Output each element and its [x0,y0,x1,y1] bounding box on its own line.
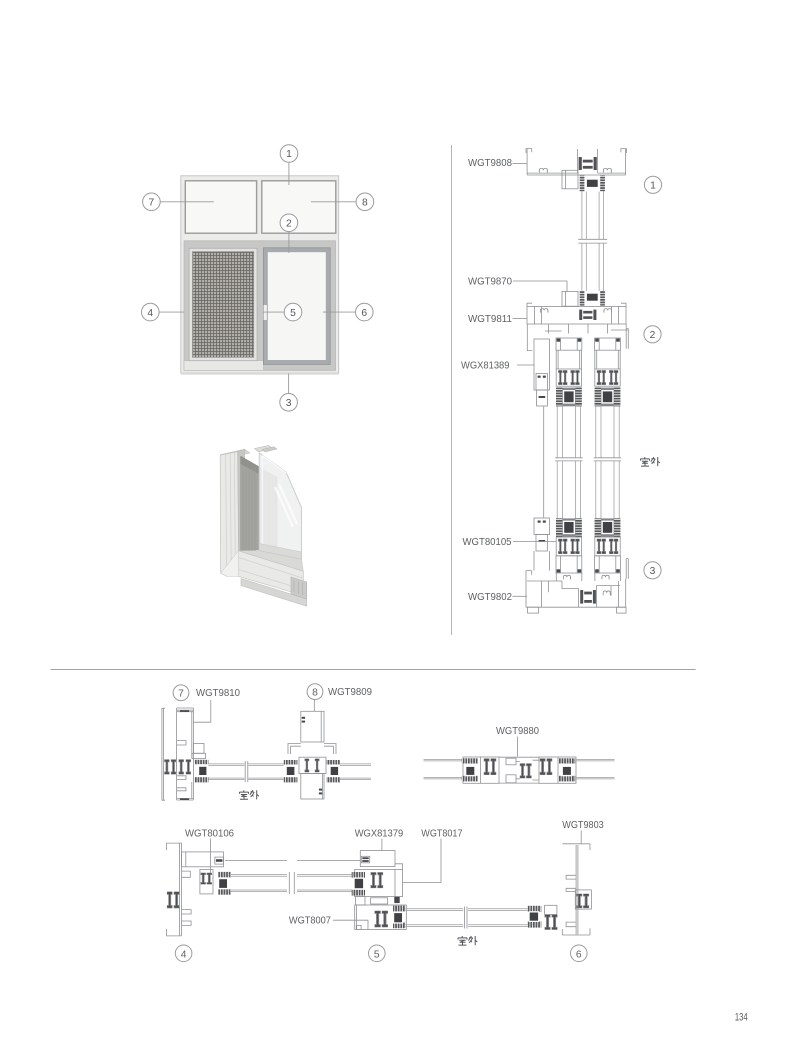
svg-text:WGX81379: WGX81379 [355,828,404,839]
svg-text:3: 3 [286,398,292,409]
svg-text:WGT80106: WGT80106 [185,828,234,839]
svg-text:7: 7 [178,689,184,700]
svg-text:6: 6 [361,308,367,319]
svg-text:WGT9870: WGT9870 [468,276,512,287]
svg-text:8: 8 [362,198,368,209]
svg-text:2: 2 [286,219,292,230]
svg-text:WGT9809: WGT9809 [328,687,372,698]
svg-text:WGT80105: WGT80105 [463,537,512,548]
svg-text:4: 4 [181,949,187,960]
svg-text:WGT9808: WGT9808 [468,158,512,169]
svg-text:4: 4 [147,308,153,319]
svg-text:3: 3 [650,566,656,577]
svg-text:5: 5 [374,949,380,960]
svg-text:WGT9880: WGT9880 [496,726,539,737]
svg-text:1: 1 [286,149,292,160]
svg-text:7: 7 [149,198,155,209]
svg-text:WGT9803: WGT9803 [562,820,604,831]
svg-text:WGT9810: WGT9810 [196,688,240,699]
svg-text:WGT9811: WGT9811 [468,314,512,325]
svg-text:5: 5 [290,308,296,319]
svg-text:WGT9802: WGT9802 [468,592,512,603]
svg-text:1: 1 [650,181,656,192]
svg-text:134: 134 [735,1011,748,1023]
svg-text:8: 8 [312,688,318,699]
svg-text:WGX81389: WGX81389 [461,361,510,372]
svg-text:6: 6 [576,949,582,960]
svg-text:2: 2 [650,330,656,341]
svg-text:WGT8007: WGT8007 [289,916,331,927]
svg-text:WGT8017: WGT8017 [421,828,463,839]
